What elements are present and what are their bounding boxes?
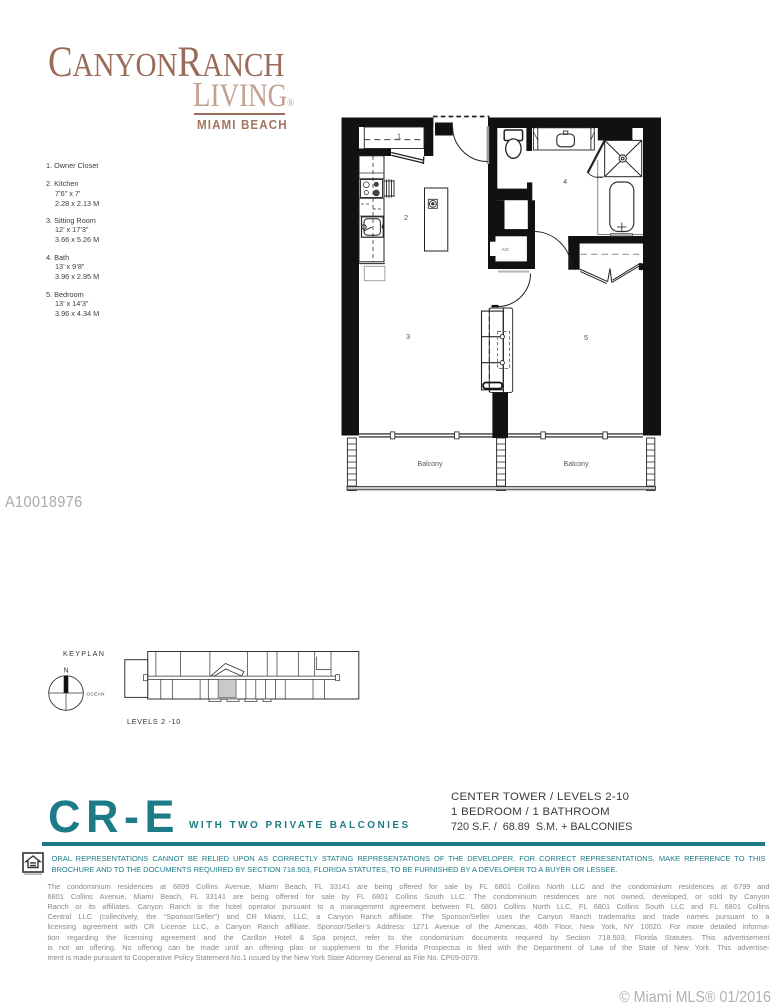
svg-text:2: 2: [404, 213, 408, 222]
svg-text:N: N: [63, 668, 68, 675]
svg-text:LEVELS 2 -10: LEVELS 2 -10: [127, 717, 181, 726]
svg-text:Balcony: Balcony: [564, 461, 589, 468]
svg-text:A/C: A/C: [502, 247, 511, 253]
svg-text:5: 5: [584, 333, 588, 342]
svg-text:3: 3: [406, 332, 410, 341]
svg-text:OCEAN: OCEAN: [87, 692, 105, 697]
svg-text:1: 1: [397, 132, 401, 141]
svg-text:KEYPLAN: KEYPLAN: [63, 649, 105, 658]
svg-text:Balcony: Balcony: [418, 461, 443, 468]
svg-text:4: 4: [563, 177, 567, 186]
